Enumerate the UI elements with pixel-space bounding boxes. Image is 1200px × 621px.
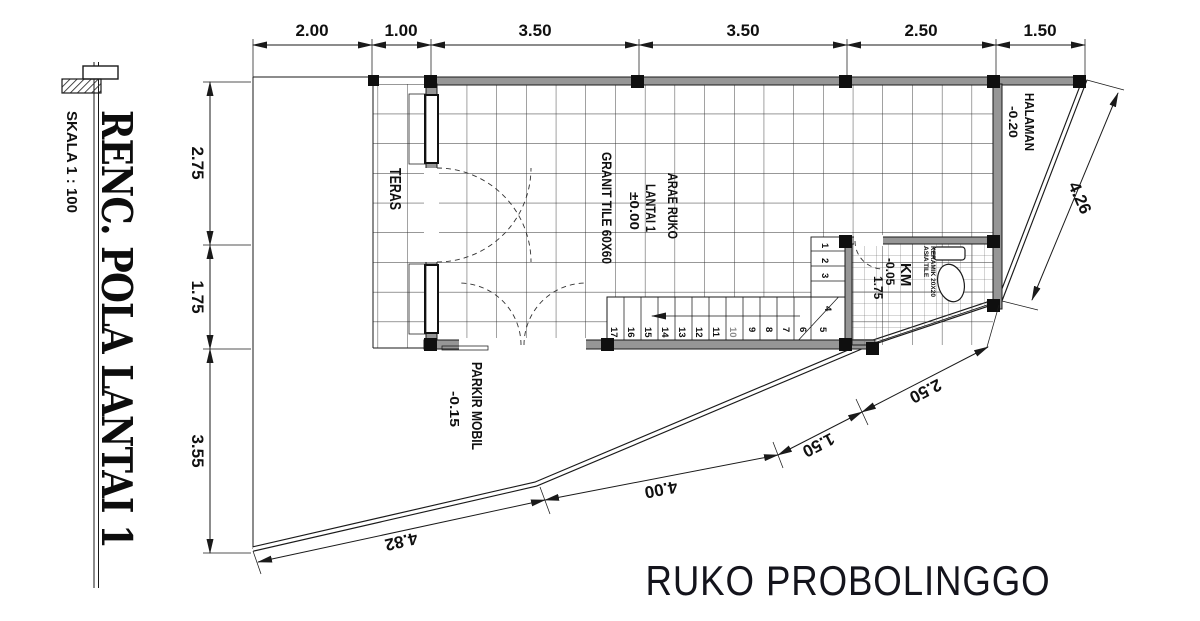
drawing-scale: SKALA 1 : 100 [63, 111, 80, 213]
dim-left-3: 3.55 [188, 434, 207, 467]
label-parkir: PARKIR MOBIL [468, 362, 485, 450]
label-area-ruko-2: LANTAI 1 [643, 184, 658, 232]
stair-num-12: 12 [693, 327, 704, 338]
wall-km-left [845, 237, 852, 345]
floor-plan-drawing: RENC. POLA LANTAI 1 SKALA 1 : 100 2.00 1… [0, 0, 1200, 621]
wall-halaman [993, 84, 1002, 309]
stair-num-7: 7 [780, 327, 791, 332]
dim-left-2: 1.75 [188, 280, 207, 313]
stair-num-14: 14 [659, 327, 670, 338]
wall-front [430, 77, 1085, 85]
stair-num-11: 11 [710, 327, 721, 338]
stair-num-8: 8 [763, 327, 774, 332]
dim-top-6: 1.50 [1023, 21, 1056, 40]
stair-num-4: 4 [822, 306, 833, 312]
dim-top-3: 3.50 [518, 21, 551, 40]
project-title: RUKO PROBOLINGGO [646, 557, 1051, 604]
dimension-chain-top: 2.00 1.00 3.50 3.50 2.50 1.50 [253, 21, 1085, 77]
door-opening-km [854, 235, 883, 246]
stair-num-9: 9 [746, 327, 757, 332]
window-front-lower [425, 265, 438, 333]
door-opening-back [459, 338, 586, 350]
label-parkir-elev: -0.15 [447, 391, 462, 427]
label-km-tile-1: ASIA TILE [922, 246, 929, 278]
label-km-tile-2: KERAMIK 20X20 [929, 246, 936, 297]
dimension-chain-left: 2.75 1.75 3.55 [188, 82, 251, 553]
title-block: RENC. POLA LANTAI 1 SKALA 1 : 100 [62, 62, 141, 588]
stair-num-10: 10 [727, 327, 738, 338]
teras-floor-grid [373, 84, 427, 348]
floor-plan-page: RENC. POLA LANTAI 1 SKALA 1 : 100 2.00 1… [0, 0, 1200, 621]
stair-num-3: 3 [819, 273, 830, 278]
label-floor-finish: GRANIT TILE 60X60 [599, 152, 614, 264]
dim-top-5: 2.50 [904, 21, 937, 40]
dim-top-4: 3.50 [726, 21, 759, 40]
stair-num-15: 15 [642, 327, 653, 338]
stair-num-2: 2 [819, 258, 830, 263]
label-teras: TERAS [386, 168, 403, 210]
dim-left-1: 2.75 [188, 146, 207, 179]
stair-num-13: 13 [676, 327, 687, 338]
door-opening-main [424, 168, 439, 262]
stair-num-17: 17 [608, 327, 619, 338]
dim-bottom-2: 4.00 [643, 477, 679, 502]
building [368, 75, 1086, 355]
label-km-dim: 1.75 [871, 276, 885, 300]
label-halaman: HALAMAN [1022, 93, 1037, 151]
label-elevation-main: ±0.00 [627, 192, 642, 230]
title-block-symbol-box [83, 66, 118, 79]
dim-top-1: 2.00 [295, 21, 328, 40]
stair-num-6: 6 [797, 327, 808, 332]
dim-bottom-1: 4.82 [383, 528, 420, 554]
window-front-upper [425, 95, 438, 163]
stair-num-16: 16 [625, 327, 636, 338]
label-halaman-elev: -0.20 [1006, 106, 1020, 138]
dim-top-2: 1.00 [384, 21, 417, 40]
drawing-title: RENC. POLA LANTAI 1 [92, 110, 141, 548]
stair-num-5: 5 [817, 327, 828, 333]
label-area-ruko-1: ARAE RUKO [665, 173, 680, 239]
label-km: KM [897, 263, 914, 286]
title-block-symbol-hatch [62, 79, 101, 93]
stair-num-1: 1 [819, 243, 830, 249]
